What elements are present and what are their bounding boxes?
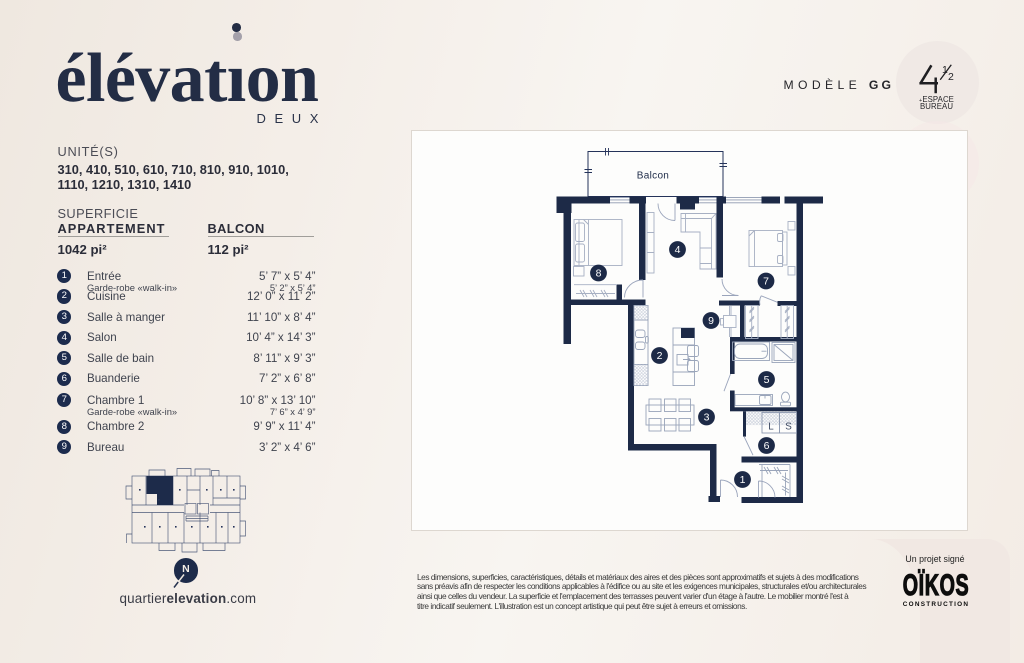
svg-text:9: 9	[708, 315, 714, 327]
svg-text:1: 1	[740, 474, 746, 486]
svg-text:3: 3	[704, 412, 710, 424]
svg-text:L: L	[768, 422, 774, 433]
svg-text:6: 6	[764, 440, 770, 452]
svg-text:S: S	[785, 422, 792, 433]
svg-text:5: 5	[764, 374, 770, 386]
svg-text:4: 4	[675, 244, 681, 256]
svg-text:2: 2	[948, 71, 954, 83]
svg-text:8: 8	[596, 268, 602, 280]
svg-text:7: 7	[763, 276, 769, 288]
svg-text:Balcon: Balcon	[637, 171, 669, 182]
svg-text:2: 2	[657, 350, 663, 362]
